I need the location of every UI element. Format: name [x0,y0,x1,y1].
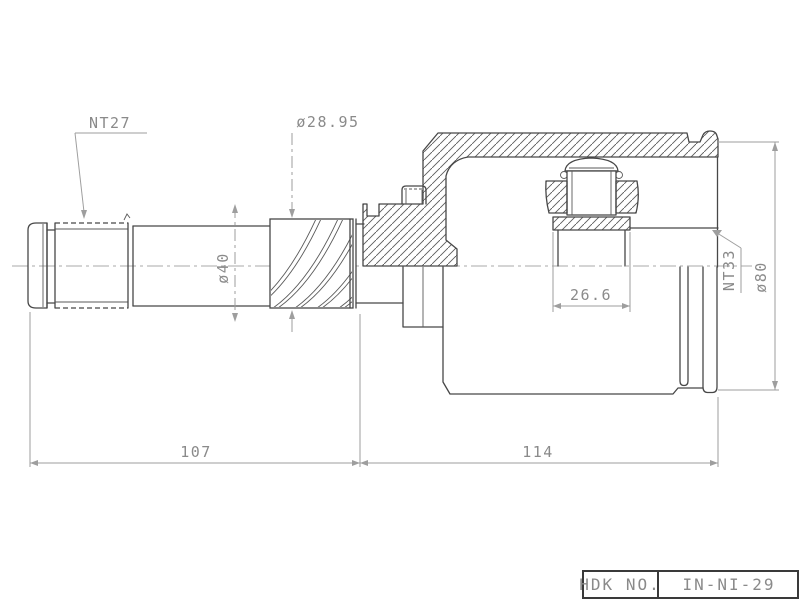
label-nt27: NT27 [75,114,147,219]
dim-26-6-text: 26.6 [570,286,612,304]
dia-28-95-text: ø28.95 [296,113,359,131]
needle-rollers-left [546,181,567,213]
title-block-label: HDK NO. [579,575,660,594]
dia-80-text: ø80 [752,261,770,293]
dimension-dia-40: ø40 [214,204,238,322]
housing-exterior [403,267,717,394]
dim-114-text: 114 [522,443,554,461]
dimension-26-6: 26.6 [553,232,630,312]
housing-cut-wall [363,131,718,266]
nt27-text: NT27 [89,114,131,132]
roller-dome [565,158,618,171]
rim-groove [703,267,717,393]
title-block: HDK NO. IN-NI-29 [579,571,798,598]
roller-inner [567,171,616,215]
needle-rollers-right [616,181,638,213]
dim-107-text: 107 [180,443,212,461]
title-block-value: IN-NI-29 [682,575,775,594]
nt33-text: NT33 [720,249,738,291]
technical-drawing-cv-joint: NT27 ø28.95 ø40 26.6 NT33 [0,0,800,600]
roller-bearing [546,158,638,266]
track-land [553,217,630,230]
boot-groove [680,267,688,386]
dimension-107: 107 [30,312,360,467]
surface-mark [124,214,130,220]
dimension-114: 114 [360,397,718,467]
housing-section [363,131,718,267]
dia-40-text: ø40 [214,252,232,284]
